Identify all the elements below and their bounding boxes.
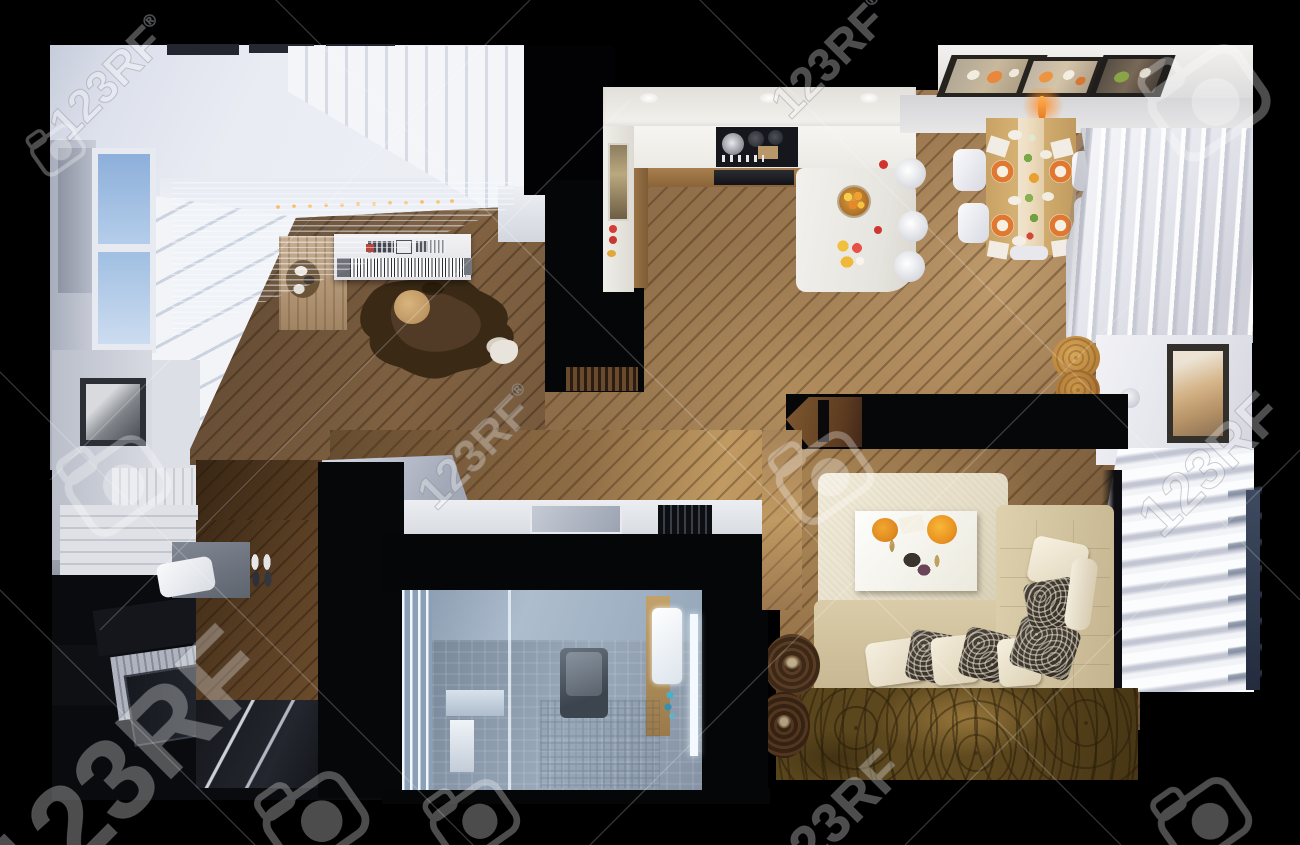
svg-text:123RF®: 123RF®	[406, 375, 550, 519]
svg-text:123RF: 123RF	[755, 738, 916, 845]
svg-text:123RF: 123RF	[0, 603, 292, 845]
svg-text:123RF: 123RF	[1125, 380, 1294, 549]
svg-text:123RF®: 123RF®	[760, 0, 904, 128]
